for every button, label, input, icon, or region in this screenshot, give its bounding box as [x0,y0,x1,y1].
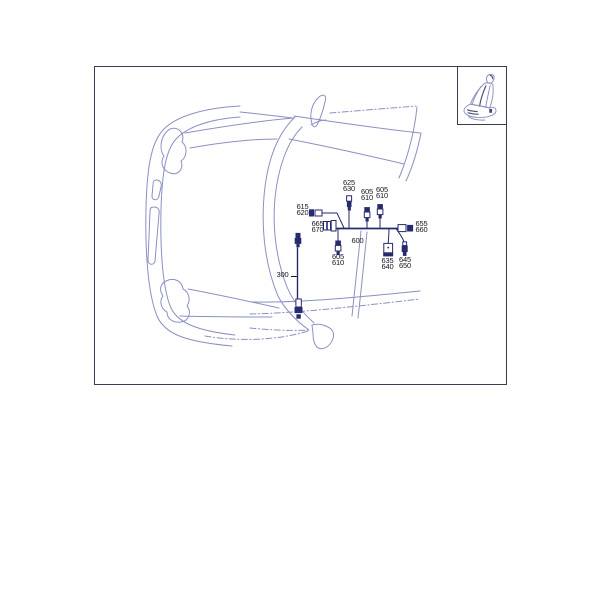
callout-600: 600 [351,238,365,244]
side-mirror-bottom [312,324,334,348]
bumper-bottom-line [205,331,308,339]
callout-605-610-b: 605 610 [374,187,390,200]
seat-bolster-2 [480,86,486,106]
catalog-page: 625 630 605 610 605 610 615 620 665 670 … [0,0,600,600]
callout-605-610-c: 605 610 [330,254,346,267]
wire-300-top-connector [295,233,301,246]
connector-625-630 [347,196,352,229]
seat-cushion-shade-2 [468,113,478,114]
beltline-upper [294,116,420,133]
connector-605-610-a [364,208,370,229]
hood-line-5 [180,316,272,317]
hood-line-4 [188,289,279,308]
callout-615-620: 615 620 [292,204,309,217]
callout-635-640: 635 640 [380,258,396,271]
side-mirror-top [311,95,326,127]
bumper-detail-lower [148,207,159,264]
sill-line-2 [250,299,420,314]
callout-605-610-a: 605 610 [359,189,375,202]
wire-300-drawing [295,233,302,318]
cowl-line [289,139,404,164]
front-outer-edge [146,106,240,346]
roof-line-dashdot [330,106,416,113]
seat-cushion-shade-1 [468,110,478,112]
seat-inset-box [457,66,507,125]
connector-665-670 [324,221,337,232]
connector-605-610-b [377,205,383,229]
connector-605-610-c [335,229,341,255]
hood-line-2 [190,139,277,148]
sill-line-1 [252,291,420,302]
b-pillar-top-1 [399,107,417,178]
connector-645-650 [396,229,407,256]
callout-300: 300 [277,272,291,278]
seat-headrest-shade [490,75,493,78]
wire-300-bottom-connector [295,299,302,318]
callout-625-630: 625 630 [341,180,357,193]
callout-655-660: 655 660 [416,221,432,234]
seat-bolster-1 [472,86,481,104]
seat-buckle [489,109,492,113]
connector-655-660 [398,225,413,232]
bumper-detail-upper [152,180,161,200]
callout-665-670: 665 670 [307,221,324,234]
hood-line-1 [185,118,293,133]
wiring-harness-drawing [310,196,413,256]
b-pillar-top-2 [406,133,421,181]
callout-645-650: 645 650 [397,257,413,270]
seat-bolster-3 [486,85,490,107]
connector-635-640 [384,229,393,256]
seat-icon [458,67,506,124]
a-pillar-outer [263,117,309,330]
hood-line-3 [240,112,293,118]
sill-line-3 [250,328,309,330]
front-inner-edge [161,117,240,335]
diagram-artwork [0,0,600,600]
